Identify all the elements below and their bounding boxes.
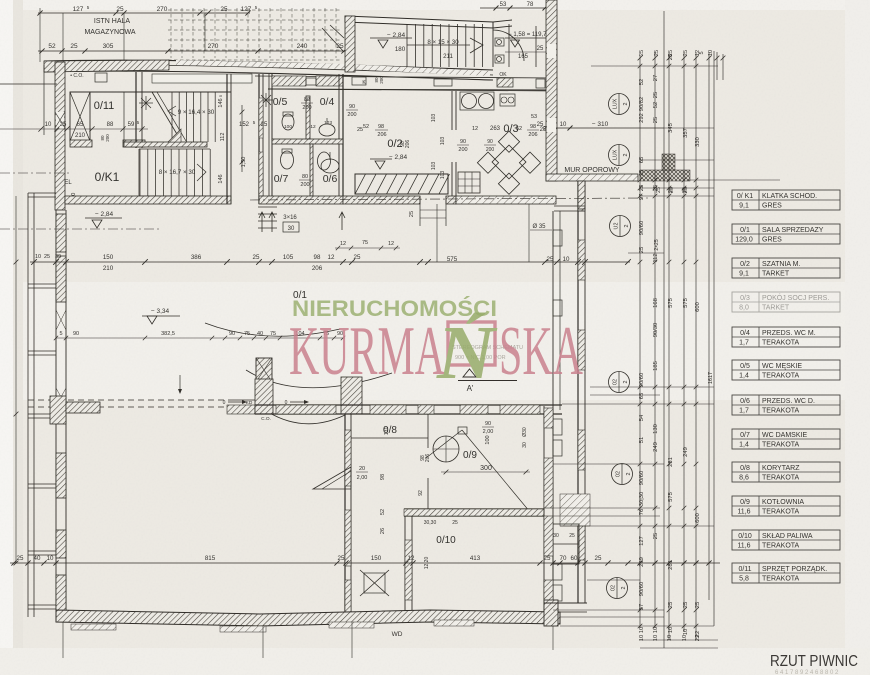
svg-text:TERAKOTA: TERAKOTA	[762, 442, 800, 449]
svg-text:10: 10	[639, 635, 645, 641]
svg-text:25: 25	[338, 555, 345, 562]
svg-text:12: 12	[472, 126, 478, 132]
svg-text:30: 30	[288, 226, 295, 232]
svg-text:2×25: 2×25	[654, 239, 660, 250]
svg-text:57: 57	[639, 604, 645, 610]
svg-text:0/5: 0/5	[740, 363, 750, 370]
svg-text:305: 305	[103, 43, 114, 50]
svg-text:25: 25	[682, 187, 688, 193]
svg-text:10: 10	[47, 555, 54, 562]
svg-text:0/9: 0/9	[463, 450, 477, 461]
svg-text:2: 2	[623, 381, 629, 384]
svg-text:− 2,84: − 2,84	[389, 154, 408, 161]
svg-text:292: 292	[639, 113, 645, 123]
svg-text:1617: 1617	[708, 372, 714, 384]
svg-text:− 2,84: − 2,84	[95, 211, 114, 218]
svg-text:GRES: GRES	[762, 237, 782, 244]
svg-text:SZATNIA M.: SZATNIA M.	[762, 261, 800, 268]
svg-text:KD: KD	[246, 400, 253, 406]
svg-text:0/3: 0/3	[740, 295, 750, 302]
svg-text:80: 80	[302, 174, 308, 180]
svg-text:25: 25	[354, 254, 361, 261]
svg-text:Ø30: Ø30	[522, 427, 528, 437]
svg-text:25: 25	[261, 122, 268, 128]
svg-text:575: 575	[447, 256, 458, 263]
svg-text:25: 25	[668, 602, 674, 608]
svg-text:10: 10	[683, 629, 689, 635]
svg-text:ISTN HALA: ISTN HALA	[94, 18, 131, 25]
svg-text:25: 25	[17, 555, 24, 562]
svg-text:65: 65	[639, 393, 645, 399]
svg-text:TERAKOTA: TERAKOTA	[762, 340, 800, 347]
svg-text:200: 200	[300, 182, 309, 188]
svg-text:200: 200	[105, 134, 110, 142]
svg-text:206: 206	[425, 454, 431, 463]
svg-text:PRZEDS. WC D.: PRZEDS. WC D.	[762, 398, 815, 405]
svg-text:103: 103	[440, 171, 446, 180]
svg-text:25: 25	[654, 50, 660, 56]
svg-text:30,30: 30,30	[424, 520, 437, 526]
svg-text:210: 210	[103, 265, 114, 272]
svg-text:281: 281	[668, 560, 674, 570]
svg-text:KORYTARZ: KORYTARZ	[762, 465, 800, 472]
svg-text:2,00: 2,00	[483, 429, 494, 435]
svg-text:10: 10	[667, 635, 673, 641]
svg-text:30: 30	[522, 442, 528, 448]
svg-text:10: 10	[653, 627, 659, 633]
svg-text:TARKET: TARKET	[762, 305, 790, 312]
svg-text:TERAKOTA: TERAKOTA	[762, 543, 800, 550]
svg-text:8,0: 8,0	[739, 305, 749, 312]
svg-text:10: 10	[682, 635, 688, 641]
svg-text:211: 211	[443, 53, 453, 60]
svg-text:39: 39	[55, 254, 61, 260]
svg-text:600: 600	[695, 302, 701, 312]
svg-text:12: 12	[310, 124, 316, 130]
svg-text:98: 98	[530, 124, 536, 130]
svg-text:TERAKOTA: TERAKOTA	[762, 408, 800, 415]
svg-text:815: 815	[205, 555, 216, 562]
svg-text:9,1: 9,1	[739, 271, 749, 278]
svg-text:0/ K1: 0/ K1	[737, 193, 753, 200]
svg-text:10: 10	[653, 635, 659, 641]
svg-text:105: 105	[283, 254, 294, 261]
svg-text:10: 10	[35, 254, 41, 260]
svg-text:2: 2	[624, 225, 630, 228]
svg-text:11,6: 11,6	[737, 543, 750, 550]
svg-text:90/60: 90/60	[639, 373, 645, 388]
svg-text:100: 100	[485, 435, 491, 444]
svg-text:51: 51	[639, 437, 645, 443]
svg-text:KLATKA SCHOD.: KLATKA SCHOD.	[762, 193, 817, 200]
svg-text:345: 345	[668, 123, 674, 133]
svg-text:8 × 16,7 × 30: 8 × 16,7 × 30	[159, 169, 196, 176]
svg-text:200: 200	[486, 147, 495, 153]
svg-text:575: 575	[668, 492, 674, 502]
svg-text:206: 206	[377, 132, 386, 138]
svg-text:146: 146	[218, 98, 224, 107]
svg-text:25: 25	[656, 187, 662, 193]
svg-text:40: 40	[34, 555, 41, 562]
svg-text:88: 88	[107, 122, 114, 128]
svg-text:10: 10	[563, 256, 570, 263]
svg-text:168: 168	[653, 298, 659, 308]
svg-text:WC MĘSKIE: WC MĘSKIE	[762, 363, 802, 370]
svg-text:127: 127	[639, 536, 645, 546]
svg-text:• C.O.: • C.O.	[70, 73, 83, 79]
svg-text:TERAKOTA: TERAKOTA	[762, 373, 800, 380]
svg-text:103: 103	[440, 137, 446, 146]
svg-text:52: 52	[653, 102, 659, 108]
svg-text:25: 25	[70, 43, 78, 50]
svg-text:65: 65	[77, 122, 84, 128]
svg-text:52: 52	[380, 509, 386, 515]
svg-text:0: 0	[223, 400, 226, 406]
svg-text:3×16: 3×16	[283, 215, 297, 221]
svg-text:− 3,34: − 3,34	[151, 308, 170, 315]
svg-text:0/5: 0/5	[273, 96, 288, 108]
svg-text:131: 131	[384, 427, 390, 436]
svg-text:25: 25	[44, 254, 50, 260]
svg-text:98: 98	[314, 254, 321, 261]
svg-text:90/60: 90/60	[639, 221, 645, 236]
svg-text:90/60: 90/60	[639, 471, 645, 486]
svg-text:53: 53	[531, 114, 537, 120]
svg-text:249: 249	[653, 442, 659, 452]
svg-text:357: 357	[683, 128, 689, 138]
svg-text:WC DAMSKIE: WC DAMSKIE	[762, 432, 807, 439]
svg-text:413: 413	[470, 555, 481, 562]
svg-text:9 × 16,4 × 30: 9 × 16,4 × 30	[178, 109, 215, 116]
svg-text:90: 90	[487, 139, 493, 145]
svg-text:25: 25	[253, 254, 260, 261]
svg-text:0/11: 0/11	[738, 566, 751, 573]
svg-text:2: 2	[626, 473, 632, 476]
svg-text:0/9: 0/9	[740, 499, 750, 506]
svg-text:30: 30	[553, 533, 559, 539]
svg-text:2,00: 2,00	[357, 475, 368, 481]
svg-text:25: 25	[357, 127, 363, 133]
svg-text:90/60: 90/60	[639, 582, 645, 597]
svg-text:0/4: 0/4	[320, 96, 335, 108]
svg-text:150: 150	[103, 254, 114, 261]
svg-text:0/1: 0/1	[740, 227, 750, 234]
svg-text:53: 53	[500, 2, 507, 8]
svg-text:25: 25	[116, 6, 124, 13]
svg-text:2: 2	[623, 103, 629, 106]
svg-text:185: 185	[653, 361, 659, 371]
svg-text:382,5: 382,5	[161, 331, 175, 337]
svg-text:25: 25	[639, 50, 645, 56]
svg-text:103: 103	[324, 120, 332, 126]
svg-text:5,8: 5,8	[739, 576, 749, 583]
svg-text:MUR OPOROWY: MUR OPOROWY	[564, 167, 620, 174]
svg-text:0/7: 0/7	[274, 173, 289, 185]
svg-text:5: 5	[59, 331, 62, 337]
svg-text:0/2: 0/2	[740, 261, 750, 268]
svg-text:2: 2	[623, 154, 629, 157]
svg-text:90/30: 90/30	[653, 323, 659, 338]
svg-text:25: 25	[639, 185, 645, 191]
svg-text:10: 10	[45, 122, 52, 128]
svg-text:TARKET: TARKET	[762, 271, 790, 278]
svg-text:12: 12	[408, 555, 415, 562]
svg-text:240: 240	[297, 43, 308, 50]
svg-text:0/6: 0/6	[323, 173, 338, 185]
svg-text:25: 25	[595, 555, 602, 562]
svg-text:386: 386	[191, 254, 202, 261]
svg-text:Ø 35: Ø 35	[532, 224, 546, 230]
svg-text:103: 103	[431, 114, 437, 123]
svg-text:0/K1: 0/K1	[95, 170, 120, 184]
svg-text:65: 65	[639, 157, 645, 163]
svg-text:SKA: SKA	[499, 313, 583, 390]
svg-text:150: 150	[371, 555, 382, 562]
svg-text:25: 25	[537, 122, 544, 128]
svg-text:25: 25	[653, 92, 659, 98]
svg-text:25: 25	[683, 50, 689, 56]
svg-text:76: 76	[639, 509, 645, 515]
svg-text:1,7: 1,7	[739, 340, 749, 347]
svg-text:20: 20	[359, 466, 365, 472]
svg-text:1,4: 1,4	[739, 373, 749, 380]
svg-text:TERAKOTA: TERAKOTA	[762, 576, 800, 583]
svg-text:25: 25	[220, 6, 228, 13]
svg-text:02: 02	[613, 379, 619, 385]
svg-text:52: 52	[48, 43, 56, 50]
svg-text:1,7: 1,7	[739, 408, 749, 415]
svg-text:206: 206	[528, 132, 537, 138]
svg-text:90: 90	[73, 331, 79, 337]
svg-text:SKŁAD PALIWA: SKŁAD PALIWA	[762, 533, 813, 540]
svg-text:152: 152	[239, 122, 250, 128]
svg-text:25: 25	[668, 54, 674, 60]
svg-text:330: 330	[695, 137, 701, 147]
svg-text:5: 5	[699, 51, 705, 54]
svg-text:02: 02	[616, 471, 622, 477]
svg-text:OK: OK	[499, 72, 507, 78]
svg-text:80: 80	[304, 97, 310, 103]
svg-text:SALA SPRZEDAZY: SALA SPRZEDAZY	[762, 227, 824, 234]
svg-text:90: 90	[349, 104, 355, 110]
svg-text:180: 180	[395, 46, 406, 53]
svg-text:200: 200	[379, 76, 384, 84]
svg-text:26: 26	[380, 528, 386, 534]
svg-text:25: 25	[653, 117, 659, 123]
svg-text:59: 59	[128, 122, 135, 128]
svg-text:78: 78	[527, 2, 534, 8]
svg-text:0/11: 0/11	[94, 100, 115, 112]
svg-text:75: 75	[362, 240, 368, 246]
svg-text:92: 92	[418, 490, 424, 496]
svg-text:263: 263	[490, 126, 501, 132]
svg-text:249: 249	[683, 447, 689, 457]
svg-text:98: 98	[380, 474, 386, 480]
svg-text:25: 25	[669, 187, 675, 193]
svg-text:10: 10	[560, 122, 567, 128]
svg-text:U2: U2	[614, 223, 620, 230]
svg-text:30|30: 30|30	[639, 492, 645, 506]
svg-text:200: 200	[458, 147, 467, 153]
svg-text:90: 90	[460, 139, 466, 145]
svg-text:8 × 15 × 30: 8 × 15 × 30	[427, 39, 459, 46]
svg-text:Ń: Ń	[436, 311, 498, 395]
svg-text:0/8: 0/8	[740, 465, 750, 472]
svg-text:PRZEDS. WC M.: PRZEDS. WC M.	[762, 330, 816, 337]
svg-text:130: 130	[653, 424, 659, 434]
svg-text:127: 127	[241, 6, 252, 13]
svg-text:25: 25	[537, 46, 544, 52]
svg-text:25: 25	[569, 533, 575, 539]
svg-text:70: 70	[560, 555, 567, 562]
svg-text:100: 100	[284, 124, 292, 130]
svg-text:200: 200	[302, 105, 311, 111]
svg-text:KURMA: KURMA	[289, 313, 445, 390]
svg-text:KOTŁOWNIA: KOTŁOWNIA	[762, 499, 804, 506]
svg-text:TERAKOTA: TERAKOTA	[762, 509, 800, 516]
svg-text:52: 52	[639, 79, 645, 85]
svg-text:2: 2	[621, 587, 627, 590]
svg-text:LUX: LUX	[613, 98, 619, 109]
svg-text:22: 22	[695, 635, 701, 641]
svg-text:98: 98	[378, 124, 384, 130]
svg-text:25: 25	[639, 170, 645, 176]
svg-text:12: 12	[328, 254, 335, 261]
svg-text:200: 200	[347, 112, 356, 118]
svg-text:52: 52	[363, 124, 369, 130]
svg-text:129,0: 129,0	[735, 237, 753, 244]
svg-text:0/10: 0/10	[738, 533, 752, 540]
svg-text:SPRZĘT PORZĄDK.: SPRZĘT PORZĄDK.	[762, 566, 827, 573]
svg-text:0/7: 0/7	[740, 432, 750, 439]
svg-text:25: 25	[336, 43, 344, 50]
svg-text:90: 90	[485, 421, 491, 427]
svg-text:MAGAZYNOWA: MAGAZYNOWA	[84, 29, 135, 36]
svg-text:575: 575	[668, 298, 674, 308]
svg-text:112: 112	[220, 133, 226, 142]
svg-text:0/10: 0/10	[436, 535, 456, 546]
svg-text:103: 103	[431, 162, 437, 171]
svg-text:25: 25	[452, 520, 458, 526]
svg-text:90/82: 90/82	[639, 97, 645, 112]
svg-text:25: 25	[547, 256, 554, 263]
svg-text:LUX: LUX	[613, 149, 619, 160]
svg-text:97: 97	[639, 194, 645, 200]
svg-text:300: 300	[480, 465, 492, 472]
svg-text:EL: EL	[64, 180, 72, 186]
svg-text:12: 12	[388, 241, 394, 247]
svg-text:WD: WD	[392, 631, 403, 638]
svg-text:1,4: 1,4	[739, 442, 749, 449]
svg-text:− 310: − 310	[592, 121, 609, 128]
svg-text:40: 40	[257, 331, 263, 337]
svg-text:TERAKOTA: TERAKOTA	[762, 475, 800, 482]
svg-text:RZUT PIWNIC: RZUT PIWNIC	[770, 653, 858, 670]
svg-text:27: 27	[653, 75, 659, 81]
svg-text:25: 25	[60, 122, 67, 128]
svg-text:GRES: GRES	[762, 203, 782, 210]
svg-text:8,6: 8,6	[739, 475, 749, 482]
svg-text:10: 10	[668, 627, 674, 633]
svg-text:10: 10	[708, 50, 714, 56]
svg-text:POKÓJ SOCJ PERS.: POKÓJ SOCJ PERS.	[762, 293, 829, 302]
svg-text:0/6: 0/6	[740, 398, 750, 405]
svg-text:206: 206	[312, 265, 323, 272]
svg-text:11,6: 11,6	[737, 509, 750, 516]
svg-text:281: 281	[668, 457, 674, 467]
svg-text:25: 25	[683, 602, 689, 608]
svg-text:25: 25	[409, 211, 415, 217]
svg-text:60: 60	[571, 555, 578, 562]
svg-text:206: 206	[405, 140, 411, 149]
svg-text:270: 270	[208, 43, 219, 50]
svg-text:25: 25	[639, 247, 645, 253]
svg-text:12: 12	[340, 241, 346, 247]
svg-text:25: 25	[653, 533, 659, 539]
svg-text:54: 54	[639, 414, 645, 421]
svg-text:0/4: 0/4	[740, 330, 750, 337]
svg-text:6 4 1 7 8 9 2 4 6 8 8 0 2: 6 4 1 7 8 9 2 4 6 8 8 0 2	[775, 670, 839, 675]
svg-text:269: 269	[639, 557, 645, 567]
svg-text:210: 210	[75, 133, 86, 139]
svg-text:02: 02	[611, 585, 617, 591]
svg-text:25: 25	[695, 602, 701, 608]
svg-text:− 1,58 = 119,72: − 1,58 = 119,72	[508, 32, 550, 38]
svg-text:C.O.: C.O.	[261, 416, 271, 422]
svg-text:112: 112	[653, 253, 659, 262]
svg-text:146: 146	[218, 174, 224, 183]
svg-text:127: 127	[73, 6, 84, 13]
svg-text:25: 25	[544, 555, 551, 562]
svg-text:10: 10	[639, 627, 645, 633]
svg-text:600: 600	[695, 513, 701, 523]
svg-text:575: 575	[683, 298, 689, 308]
svg-text:270: 270	[157, 6, 168, 13]
svg-text:9,1: 9,1	[739, 203, 749, 210]
